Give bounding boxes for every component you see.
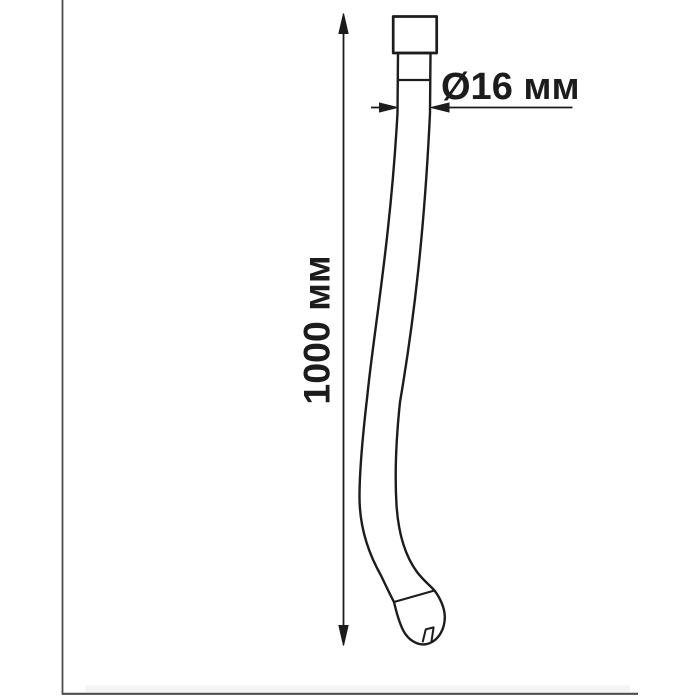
hose-drawing [360,17,445,645]
technical-drawing-canvas: Ø16 мм 1000 мм [0,0,700,700]
dimension-labels: Ø16 мм 1000 мм [296,66,580,405]
scan-shading [85,686,630,693]
diameter-dimension-label: Ø16 мм [441,66,580,108]
diameter-arrowhead-left [380,103,398,112]
hose-tip-notch [423,627,434,641]
diagram-page: Ø16 мм 1000 мм [0,0,700,700]
length-arrowhead-top [339,14,348,34]
hose-connector-cap [393,17,437,54]
hose-body-outline [360,53,445,644]
length-dimension-label: 1000 мм [296,255,338,404]
length-dimension [339,14,348,646]
length-arrowhead-bottom [339,626,348,646]
hose-tip-seam-line [394,591,435,603]
